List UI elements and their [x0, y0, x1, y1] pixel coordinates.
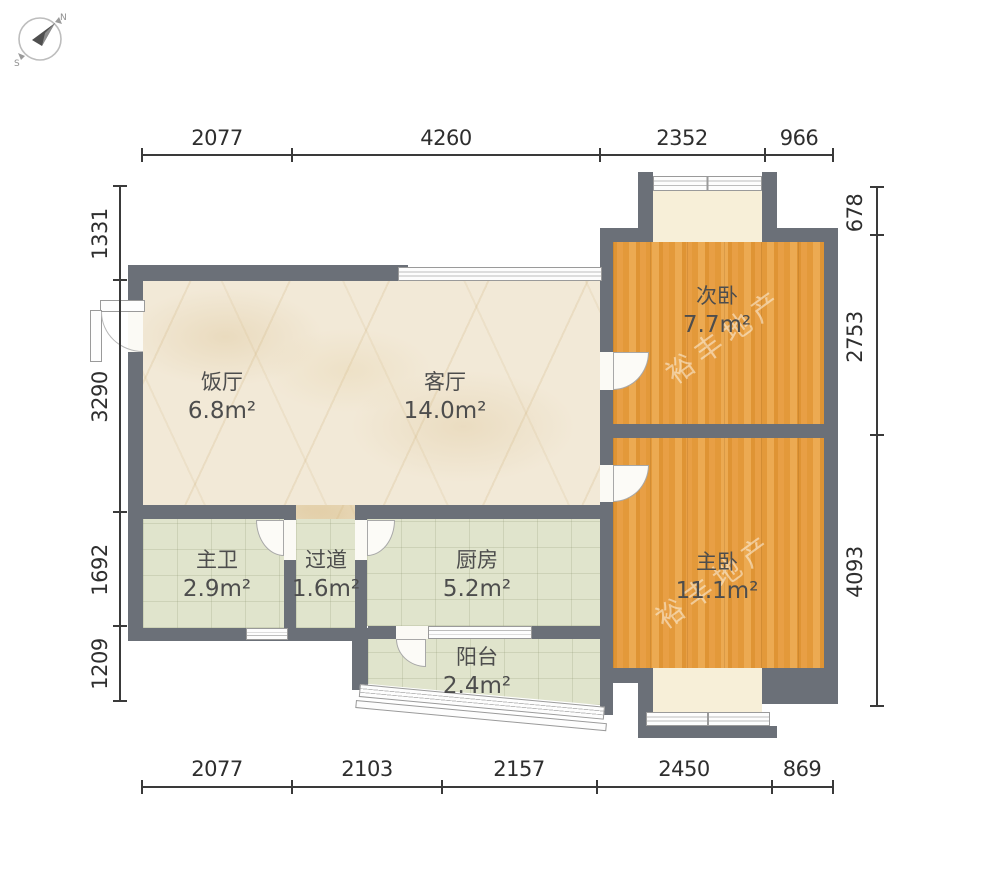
dim-left-3: 1692	[88, 538, 112, 602]
room-name-master-bath: 主卫	[157, 546, 277, 574]
dim-tick	[832, 148, 834, 162]
room-name-second-bedroom: 次卧	[657, 282, 777, 310]
dim-tick	[771, 780, 773, 794]
wall	[600, 502, 613, 715]
dim-top-3: 2352	[652, 126, 712, 150]
dim-tick	[291, 148, 293, 162]
dim-tick	[113, 700, 127, 702]
dim-tick	[141, 148, 143, 162]
master-bedroom-door-opening	[600, 465, 613, 502]
master-bath-label: 主卫 2.9m²	[157, 546, 277, 604]
wall	[600, 390, 613, 465]
room-area-hallway: 1.6m²	[276, 574, 376, 604]
dim-top-2: 4260	[416, 126, 476, 150]
living-room-label: 客厅 14.0m²	[383, 368, 507, 426]
room-area-balcony: 2.4m²	[417, 671, 537, 701]
master-bedroom-bay-window	[646, 712, 770, 726]
room-area-kitchen: 5.2m²	[417, 574, 537, 604]
room-name-balcony: 阳台	[417, 643, 537, 671]
master-bath-window	[246, 628, 288, 640]
dim-tick	[870, 234, 884, 236]
wall	[762, 172, 777, 242]
dim-tick	[141, 780, 143, 794]
balcony-label: 阳台 2.4m²	[417, 643, 537, 701]
balcony-door-opening	[396, 626, 428, 639]
wall	[368, 626, 396, 639]
wall	[638, 172, 653, 242]
second-bedroom-bay-window	[653, 176, 762, 191]
wall	[532, 626, 612, 639]
compass-icon: N S	[10, 8, 70, 68]
hallway-label: 过道 1.6m²	[276, 546, 376, 604]
dimension-line-bottom	[142, 786, 833, 788]
dim-bottom-5: 869	[772, 757, 832, 781]
dim-top-1: 2077	[187, 126, 247, 150]
dim-right-1: 678	[843, 181, 867, 245]
room-area-dining: 6.8m²	[160, 396, 284, 426]
wall	[613, 424, 824, 438]
dim-bottom-1: 2077	[187, 757, 247, 781]
master-bedroom-label: 主卧 11.1m²	[656, 548, 778, 606]
second-bedroom-bay-interior	[653, 191, 762, 242]
dim-tick	[870, 705, 884, 707]
dining-room-label: 饭厅 6.8m²	[160, 368, 284, 426]
entry-door-side-panel	[90, 310, 102, 362]
dim-right-2: 2753	[843, 305, 867, 369]
dim-left-4: 1209	[88, 632, 112, 696]
dim-tick	[113, 511, 127, 513]
dim-tick	[870, 186, 884, 188]
dim-right-3: 4093	[843, 540, 867, 604]
master-bedroom-bay-interior	[653, 668, 762, 716]
room-name-dining: 饭厅	[160, 368, 284, 396]
dim-tick	[113, 625, 127, 627]
dim-left-2: 3290	[88, 365, 112, 429]
second-bedroom-door-opening	[600, 352, 613, 390]
dim-tick	[441, 780, 443, 794]
dim-tick	[113, 279, 127, 281]
living-room-window	[398, 267, 602, 281]
dim-tick	[596, 780, 598, 794]
room-area-master-bath: 2.9m²	[157, 574, 277, 604]
dimension-line-left	[119, 186, 121, 701]
dim-left-1: 1331	[88, 202, 112, 266]
dim-bottom-3: 2157	[489, 757, 549, 781]
dim-tick	[870, 434, 884, 436]
room-area-living: 14.0m²	[383, 396, 507, 426]
room-name-kitchen: 厨房	[417, 546, 537, 574]
kitchen-label: 厨房 5.2m²	[417, 546, 537, 604]
dim-tick	[764, 148, 766, 162]
dim-tick	[599, 148, 601, 162]
wall	[128, 265, 408, 281]
compass-south-label: S	[14, 59, 20, 68]
dim-bottom-2: 2103	[337, 757, 397, 781]
kitchen-balcony-window	[428, 626, 532, 639]
room-area-second-bedroom: 7.7m²	[657, 310, 777, 340]
wall	[762, 668, 838, 704]
wall	[355, 505, 612, 519]
room-name-master-bedroom: 主卧	[656, 548, 778, 576]
wall	[128, 505, 296, 519]
room-area-master-bedroom: 11.1m²	[656, 576, 778, 606]
entry-door-swing-arc	[101, 312, 143, 352]
wall	[824, 228, 838, 704]
dim-tick	[832, 780, 834, 794]
dimension-line-top	[142, 154, 833, 156]
wall	[638, 726, 777, 738]
entry-door-leaf	[100, 300, 145, 312]
compass-north-label: N	[60, 13, 67, 23]
dim-tick	[113, 185, 127, 187]
second-bedroom-label: 次卧 7.7m²	[657, 282, 777, 340]
dim-bottom-4: 2450	[654, 757, 714, 781]
dim-tick	[291, 780, 293, 794]
wall	[352, 628, 368, 690]
floor-plan: N S 裕丰地产 裕丰地产	[0, 0, 1000, 886]
dimension-line-right	[876, 187, 878, 706]
wall	[600, 228, 613, 352]
room-name-hallway: 过道	[276, 546, 376, 574]
room-name-living: 客厅	[383, 368, 507, 396]
dim-top-4: 966	[769, 126, 829, 150]
